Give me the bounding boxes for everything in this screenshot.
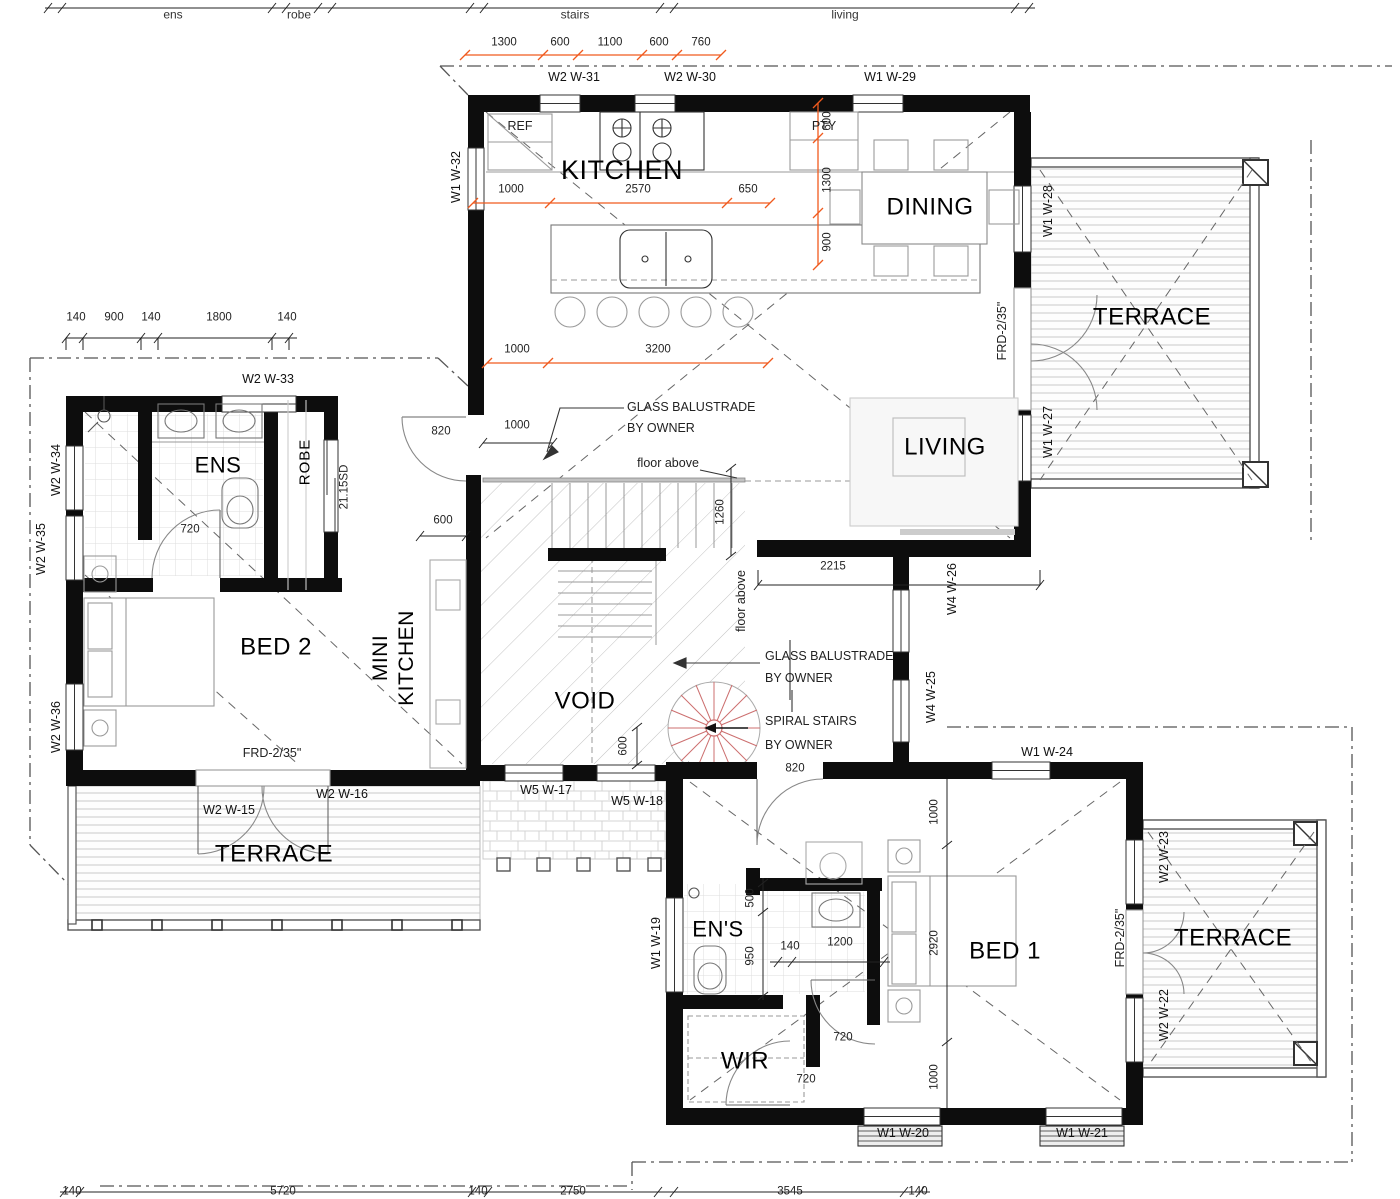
window-label-w19: W1 W-19 xyxy=(649,917,663,969)
window-label-w17: W5 W-17 xyxy=(520,783,572,797)
room-label-bed1: BED 1 xyxy=(969,939,1041,966)
dim-1000: 1000 xyxy=(498,184,524,197)
dim-3545: 3545 xyxy=(777,1186,803,1199)
dim-5720: 5720 xyxy=(270,1186,296,1199)
window-label-w27: W1 W-27 xyxy=(1041,406,1055,458)
dim-140-bottom: 140 xyxy=(468,1186,487,1199)
room-label-terrace-se: TERRACE xyxy=(1174,926,1292,953)
dim-entry-820: 820 xyxy=(431,426,450,439)
dim-1000-bottom: 1000 xyxy=(929,1064,942,1090)
fixture-label-pty: PTY xyxy=(812,119,836,133)
note-spiral-stairs: SPIRAL STAIRS xyxy=(765,714,857,728)
room-label-terrace-sw: TERRACE xyxy=(215,842,333,869)
note-floor-above-h: floor above xyxy=(637,456,699,470)
note-frd-ne: FRD-2/35" xyxy=(995,302,1009,361)
dim-140-bottom: 140 xyxy=(908,1186,927,1199)
window-label-w22: W2 W-22 xyxy=(1157,989,1171,1041)
room-label-void: VOID xyxy=(555,689,616,716)
dim-650: 650 xyxy=(738,184,757,197)
dim-140: 140 xyxy=(277,312,296,325)
dim-1300: 1300 xyxy=(491,37,517,50)
span-label-stairs: stairs xyxy=(561,8,590,21)
dim-820-hall: 820 xyxy=(785,763,804,776)
tv-unit xyxy=(900,529,1015,535)
window-label-w33: W2 W-33 xyxy=(242,372,294,386)
window-label-w29: W1 W-29 xyxy=(864,70,916,84)
dim-2920: 2920 xyxy=(929,930,942,956)
room-label-robe: ROBE xyxy=(298,439,315,486)
window-label-w28: W1 W-28 xyxy=(1041,185,1055,237)
window-label-w18: W5 W-18 xyxy=(611,794,663,808)
plan-drawing xyxy=(0,0,1400,1199)
dim-2215: 2215 xyxy=(820,561,846,574)
note-frd-se: FRD-2/35" xyxy=(1113,909,1127,968)
dim-720-wir: 720 xyxy=(796,1074,815,1087)
note-by-owner-3: BY OWNER xyxy=(765,738,833,752)
window-label-w35: W2 W-35 xyxy=(34,523,48,575)
dim-720-ens: 720 xyxy=(180,524,199,537)
dim-1800: 1800 xyxy=(206,312,232,325)
living-rug xyxy=(850,398,1018,526)
floor-plan: ens robe stairs living 1300 600 1100 600… xyxy=(0,0,1400,1199)
dim-1100: 1100 xyxy=(598,37,623,50)
window-label-w23: W2 W-23 xyxy=(1157,831,1171,883)
dim-1000: 1000 xyxy=(504,420,530,433)
dim-1000: 1000 xyxy=(504,344,530,357)
dim-720-door: 720 xyxy=(833,1032,852,1045)
note-glass-balustrade-1: GLASS BALUSTRADE xyxy=(627,400,756,414)
sliding-door xyxy=(324,440,338,532)
span-label-robe: robe xyxy=(287,8,311,21)
note-by-owner-2: BY OWNER xyxy=(765,671,833,685)
window-label-w34: W2 W-34 xyxy=(49,444,63,496)
room-label-dining: DINING xyxy=(887,195,974,222)
window-label-w21: W1 W-21 xyxy=(1056,1126,1108,1140)
desk xyxy=(806,842,862,884)
room-label-kitchen: KITCHEN xyxy=(561,155,683,185)
window-label-w31: W2 W-31 xyxy=(548,70,600,84)
room-label-living: LIVING xyxy=(904,435,986,462)
note-glass-balustrade-2: GLASS BALUSTRADE xyxy=(765,649,894,663)
window-label-w26: W4 W-26 xyxy=(945,563,959,615)
dim-900-v: 900 xyxy=(822,232,835,251)
dim-760: 760 xyxy=(691,37,710,50)
dim-1200: 1200 xyxy=(827,937,853,950)
bed1-bed xyxy=(888,876,1016,986)
dim-140: 140 xyxy=(141,312,160,325)
window-label-w20: W1 W-20 xyxy=(877,1126,929,1140)
dim-600: 600 xyxy=(550,37,569,50)
window-label-w16: W2 W-16 xyxy=(316,787,368,801)
dim-600: 600 xyxy=(433,515,452,528)
dim-900: 900 xyxy=(104,312,123,325)
window-label-w25: W4 W-25 xyxy=(924,671,938,723)
dim-1260: 1260 xyxy=(715,499,728,525)
dim-600-void: 600 xyxy=(618,736,631,755)
note-floor-above-v: floor above xyxy=(734,570,748,632)
bed2-bed xyxy=(84,598,214,706)
note-by-owner-1: BY OWNER xyxy=(627,421,695,435)
mini-kitchen-bench xyxy=(430,560,466,768)
window-label-w15: W2 W-15 xyxy=(203,803,255,817)
room-label-ens: ENS xyxy=(195,454,242,479)
fixture-label-ref: REF xyxy=(508,119,533,133)
dim-1000-top: 1000 xyxy=(929,799,942,825)
dim-sliding-door: 21.15SD xyxy=(339,465,352,510)
dim-2570: 2570 xyxy=(625,184,651,197)
glass-balustrade xyxy=(483,478,745,482)
note-frd-sw: FRD-2/35" xyxy=(243,746,302,760)
span-label-ens: ens xyxy=(163,8,182,21)
room-label-ens2: EN'S xyxy=(692,918,743,943)
window-label-w32: W1 W-32 xyxy=(449,151,463,203)
room-label-bed2: BED 2 xyxy=(240,635,312,662)
dim-950: 950 xyxy=(745,946,758,965)
dim-140-bottom: 140 xyxy=(62,1186,81,1199)
dim-140: 140 xyxy=(66,312,85,325)
room-label-mini-kitchen: MINI KITCHEN xyxy=(368,602,421,714)
dim-2750: 2750 xyxy=(560,1186,586,1199)
room-label-wir: WIR xyxy=(721,1049,769,1076)
room-label-terrace-ne: TERRACE xyxy=(1093,305,1211,332)
window-label-w30: W2 W-30 xyxy=(664,70,716,84)
dim-3200: 3200 xyxy=(645,344,671,357)
dim-500: 500 xyxy=(745,888,758,907)
dim-140: 140 xyxy=(780,941,799,954)
window-label-w24: W1 W-24 xyxy=(1021,745,1073,759)
window-label-w36: W2 W-36 xyxy=(49,701,63,753)
dim-600: 600 xyxy=(649,37,668,50)
span-label-living: living xyxy=(831,8,858,21)
dim-1300-v: 1300 xyxy=(822,167,835,193)
